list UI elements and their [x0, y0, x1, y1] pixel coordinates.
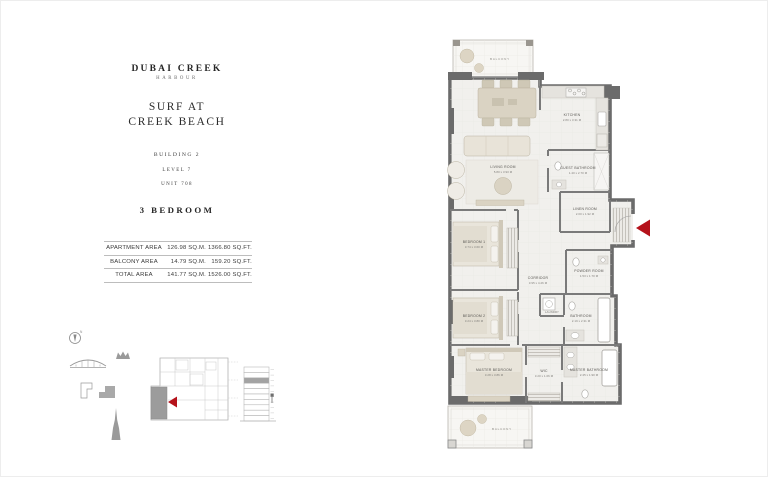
level-marker-icon — [271, 394, 274, 397]
entry-arrow — [636, 220, 650, 237]
key-plan-extension-lines — [228, 362, 238, 416]
sofa — [464, 136, 530, 156]
dresser — [468, 396, 510, 402]
room-label: MASTER BATHROOM — [570, 368, 608, 372]
level-indicator — [240, 367, 276, 421]
armchair — [448, 162, 465, 179]
pillow — [491, 320, 498, 334]
room-dims: 3.28 x 3.86 M — [485, 373, 504, 377]
room-dims: 3.95 x 4.26 M — [529, 281, 548, 285]
plant-icon — [475, 64, 484, 73]
room-label: KITCHEN — [564, 113, 581, 117]
room-label: BALCONY — [492, 427, 512, 431]
plant-icon — [460, 420, 476, 436]
balcony-top: BALCONY — [453, 40, 533, 77]
bathtub-icon — [598, 298, 610, 342]
headboard — [466, 348, 522, 352]
nightstand — [458, 349, 465, 356]
building-outline-icon — [81, 383, 92, 398]
room-dims: 3.20 x 1.06 M — [535, 374, 554, 378]
dining-table — [478, 88, 536, 118]
dining-furniture — [478, 80, 536, 126]
room-label: LAUNDRY — [545, 310, 559, 314]
room-label: MASTER BEDROOM — [476, 368, 512, 372]
room-label: BALCONY — [490, 57, 510, 61]
room-label: GUEST BATHROOM — [560, 166, 595, 170]
bridge-icon — [70, 360, 106, 368]
compass-icon: N — [70, 330, 84, 344]
room-dims: 2.80 x 3.31 M — [563, 118, 582, 122]
tv-console — [476, 200, 524, 206]
floor-plan: BALCONY — [448, 40, 651, 448]
brochure-page: DUBAI CREEK HARBOUR SURF AT CREEK BEACH … — [0, 0, 768, 477]
burj-khalifa-icon — [112, 408, 121, 440]
room-dims: 1.53 x 1.70 M — [580, 274, 599, 278]
room-label: CORRIDOR — [528, 276, 549, 280]
pillow — [489, 353, 504, 360]
pillow — [491, 302, 498, 316]
landmark-icons: N — [70, 330, 131, 440]
toilet-icon — [569, 302, 575, 310]
entry-mat — [613, 208, 630, 242]
balcony-post — [448, 440, 456, 448]
building-filled-icon — [99, 386, 115, 398]
balcony-post — [453, 40, 460, 46]
room-label: LINEN ROOM — [573, 207, 597, 211]
room-label: WIC — [540, 369, 548, 373]
balcony-post — [526, 40, 533, 46]
room-dims: 3.74 x 3.60 M — [465, 245, 484, 249]
room-dims: 2.00 x 1.92 M — [576, 212, 595, 216]
room-label: BATHROOM — [570, 314, 591, 318]
wardrobe — [528, 393, 560, 401]
fridge-icon — [597, 134, 607, 147]
headboard — [499, 220, 503, 268]
room-label: BEDROOM 1 — [463, 240, 486, 244]
door-opening — [631, 214, 633, 240]
balcony-post — [524, 440, 532, 448]
washer-icon — [543, 298, 555, 310]
room-dims: 2.19 x 2.31 M — [572, 319, 591, 323]
wardrobe — [507, 300, 518, 336]
room-label: POWDER ROOM — [574, 269, 604, 273]
pillow — [491, 226, 498, 242]
room-label: LIVING ROOM — [490, 165, 515, 169]
pillow — [491, 246, 498, 262]
highlighted-level-row — [244, 378, 269, 383]
plan-canvas: BALCONY — [0, 0, 768, 477]
armchair — [448, 183, 465, 200]
room-dims: 1.40 x 2.70 M — [569, 171, 588, 175]
key-plan-unit-highlight — [151, 387, 167, 419]
wardrobe — [507, 228, 518, 268]
compass-n-label: N — [80, 330, 83, 334]
headboard — [499, 296, 503, 340]
room-dims: 5.80 x 3.93 M — [494, 170, 513, 174]
toilet-icon — [573, 258, 579, 266]
balcony-bottom: BALCONY — [448, 406, 532, 448]
plant-icon — [478, 415, 487, 424]
sink-icon — [598, 112, 606, 126]
room-dims: 3.24 x 3.80 M — [465, 319, 484, 323]
toilet-icon — [582, 390, 588, 398]
door-opening — [633, 214, 635, 240]
bedroom2-furniture — [453, 296, 518, 340]
coffee-table — [495, 178, 512, 195]
plant-icon — [460, 49, 474, 63]
vanity — [564, 347, 577, 377]
room-label: BEDROOM 2 — [463, 314, 486, 318]
pillow — [470, 353, 485, 360]
room-dims: 2.45 x 1.90 M — [580, 373, 599, 377]
crown-landmark-icon — [116, 352, 130, 360]
key-plan — [151, 358, 238, 420]
wardrobe — [528, 347, 560, 357]
